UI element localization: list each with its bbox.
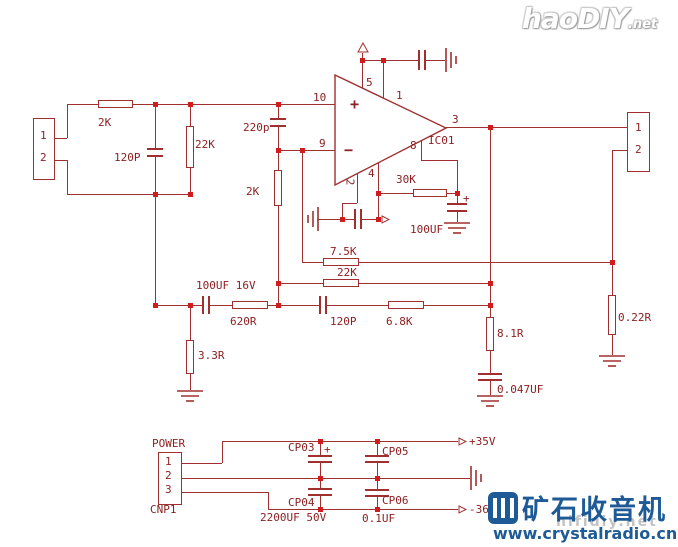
wire	[155, 194, 156, 305]
junction-dot	[318, 476, 323, 481]
capacitor-cp06	[365, 489, 389, 491]
power-pin1-label: 1	[165, 456, 172, 468]
junction-dot	[488, 303, 493, 308]
resistor-30k-label: 30K	[396, 174, 416, 186]
resistor-2k-input	[98, 100, 133, 108]
bigcap-value-label: 2200UF 50V	[260, 512, 326, 524]
resistor-6k8-label: 6.8K	[386, 316, 413, 328]
vplus-arrow-icon	[357, 42, 369, 53]
wire	[182, 478, 470, 479]
wire	[302, 150, 303, 262]
wire	[302, 262, 323, 263]
wire	[67, 104, 98, 105]
input-pin1-label: 1	[40, 130, 47, 142]
wire	[67, 194, 190, 195]
wire	[67, 104, 68, 138]
net-arrow-icon	[381, 215, 390, 224]
wire	[222, 441, 458, 442]
input-connector	[33, 118, 55, 180]
wire	[362, 60, 419, 61]
capacitor-supply-bypass	[418, 50, 420, 70]
ground-icon	[445, 48, 458, 73]
wire	[268, 509, 458, 510]
capacitor-cp06-label: CP06	[382, 495, 409, 507]
opamp-pin5-label: 5	[366, 77, 373, 89]
resistor-2k-feedback	[274, 170, 282, 206]
ground-icon	[444, 222, 471, 235]
wire	[612, 150, 613, 262]
opamp-pin2-label: 2	[343, 179, 355, 186]
crystalradio-url: www.crystalradio.cn	[493, 524, 677, 543]
wire-pin5	[362, 60, 363, 88]
smallcap-value-label: 0.1UF	[362, 513, 395, 525]
wire	[357, 174, 358, 203]
wire	[490, 283, 491, 305]
power-title: POWER	[152, 438, 185, 450]
wire	[190, 305, 191, 340]
logo-bar	[501, 498, 505, 518]
opamp-minus-sign: −	[344, 143, 353, 158]
wire	[421, 160, 457, 161]
wire	[268, 492, 269, 509]
opamp-plus-sign: +	[350, 97, 359, 112]
resistor-7k5-label: 7.5K	[330, 246, 357, 258]
junction-dot	[360, 58, 365, 63]
wire	[457, 160, 458, 193]
resistor-620r	[232, 301, 268, 309]
capacitor-0047uf	[478, 373, 502, 375]
junction-dot	[153, 102, 158, 107]
schematic-canvas: 1 2 2K 120P 22K 220p 2K + − 10 9 IC01	[0, 0, 678, 547]
junction-dot	[488, 281, 493, 286]
resistor-30k	[413, 189, 447, 197]
wire	[490, 127, 491, 283]
opamp-pin10-label: 10	[313, 92, 326, 104]
wire-pin1	[383, 60, 384, 98]
wire-output	[446, 127, 627, 128]
wire	[421, 141, 422, 160]
junction-dot	[276, 102, 281, 107]
wire	[278, 150, 335, 151]
net-arrow-icon	[458, 505, 467, 514]
wire	[190, 168, 191, 194]
wire	[182, 492, 268, 493]
opamp-pin9-label: 9	[319, 138, 326, 150]
junction-dot	[188, 102, 193, 107]
capacitor-cp04-label: CP04	[288, 497, 315, 509]
wire	[359, 283, 490, 284]
wire	[612, 262, 613, 295]
wire-pin4	[378, 162, 379, 193]
input-pin2-label: 2	[40, 152, 47, 164]
ground-icon	[470, 466, 483, 491]
wire	[55, 138, 67, 139]
resistor-0r22-label: 0.22R	[618, 312, 651, 324]
output-pin1-label: 1	[635, 122, 642, 134]
power-connector-refdes: CNP1	[150, 504, 177, 516]
wire	[278, 283, 323, 284]
wire	[490, 351, 491, 373]
resistor-3r3-label: 3.3R	[198, 350, 225, 362]
resistor-3r3	[186, 340, 194, 374]
wire	[222, 441, 223, 463]
junction-dot	[610, 260, 615, 265]
capacitor-cp03-label: CP03	[288, 442, 315, 454]
crystalradio-logo-icon	[488, 492, 518, 524]
capacitor-cp05-label: CP05	[382, 446, 409, 458]
opamp-pin8-label: 8	[410, 140, 417, 152]
crystalradio-title: 矿石收音机	[522, 488, 667, 527]
wire	[190, 374, 191, 390]
power-pin3-label: 3	[165, 484, 172, 496]
opamp-triangle	[334, 74, 448, 188]
wire	[182, 463, 222, 464]
junction-dot	[375, 507, 380, 512]
wire	[342, 203, 357, 204]
wire	[155, 104, 156, 148]
resistor-2k-feedback-label: 2K	[246, 186, 259, 198]
resistor-22k-feedback	[323, 279, 359, 287]
junction-dot	[153, 303, 158, 308]
capacitor-cp03-plus: +	[324, 444, 331, 456]
wire	[155, 157, 156, 194]
wire	[317, 219, 355, 220]
resistor-22k-input	[186, 126, 194, 168]
wire	[612, 150, 627, 151]
ground-icon	[477, 395, 504, 408]
resistor-620r-label: 620R	[230, 316, 257, 328]
resistor-22k-feedback-label: 22K	[337, 267, 357, 279]
wire	[378, 193, 413, 194]
wire	[490, 381, 491, 395]
wire	[378, 193, 379, 219]
wire	[457, 212, 458, 222]
wire	[327, 305, 388, 306]
wire	[426, 60, 445, 61]
opamp-pin1-label: 1	[396, 90, 403, 102]
net-arrow-icon	[458, 437, 467, 446]
wire	[359, 262, 612, 263]
wire	[278, 127, 279, 150]
wire	[424, 305, 490, 306]
ground-icon	[599, 355, 626, 368]
resistor-8r1	[486, 317, 494, 351]
logo-bar	[510, 498, 514, 518]
junction-dot	[188, 303, 193, 308]
junction-dot	[300, 148, 305, 153]
junction-dot	[381, 58, 386, 63]
resistor-8r1-label: 8.1R	[497, 328, 524, 340]
opamp-pin3-label: 3	[452, 114, 459, 126]
capacitor-120p-feedback	[319, 296, 321, 314]
resistor-0r22	[608, 295, 616, 335]
wire	[278, 206, 279, 305]
junction-dot	[455, 191, 460, 196]
wire	[210, 305, 232, 306]
wire	[278, 150, 279, 170]
junction-dot	[318, 507, 323, 512]
junction-dot	[375, 439, 380, 444]
wire	[133, 104, 335, 105]
resistor-22k-input-label: 22K	[195, 139, 215, 151]
wire	[190, 104, 191, 126]
wire	[155, 305, 202, 306]
opamp-pin4-label: 4	[368, 168, 375, 180]
haodiy-watermark: haoDIY.net	[522, 2, 678, 35]
wire	[612, 335, 613, 355]
vpos-label: +35V	[469, 436, 496, 448]
wire	[67, 160, 68, 194]
haodiy-watermark-net: .net	[628, 17, 657, 32]
junction-dot	[153, 192, 158, 197]
junction-dot	[188, 192, 193, 197]
resistor-6k8	[388, 301, 424, 309]
capacitor-120p-input-label: 120P	[114, 152, 141, 164]
capacitor-100uf-plus: +	[463, 193, 470, 205]
output-pin2-label: 2	[635, 144, 642, 156]
junction-dot	[276, 281, 281, 286]
capacitor-100uf-label: 100UF	[410, 224, 443, 236]
opamp-ic-label: IC01	[428, 135, 455, 147]
wire	[278, 305, 319, 306]
junction-dot	[376, 217, 381, 222]
resistor-2k-input-label: 2K	[98, 117, 111, 129]
capacitor-100uf-16v-label: 100UF 16V	[196, 280, 256, 292]
junction-dot	[276, 148, 281, 153]
resistor-7k5	[323, 258, 359, 266]
capacitor-cp04	[308, 488, 332, 490]
junction-dot	[376, 191, 381, 196]
junction-dot	[340, 217, 345, 222]
junction-dot	[318, 439, 323, 444]
capacitor-220p-label: 220p	[243, 122, 270, 134]
ground-icon	[177, 390, 204, 403]
capacitor-pin2	[354, 209, 356, 229]
power-pin2-label: 2	[165, 470, 172, 482]
capacitor-220p	[270, 118, 286, 120]
junction-dot	[488, 125, 493, 130]
wire	[55, 160, 67, 161]
junction-dot	[375, 476, 380, 481]
haodiy-watermark-text: haoDIY	[522, 2, 628, 35]
capacitor-100uf-16v	[202, 296, 204, 314]
capacitor-120p-input	[147, 148, 163, 150]
junction-dot	[276, 303, 281, 308]
capacitor-120p-feedback-label: 120P	[330, 316, 357, 328]
logo-bar	[493, 498, 497, 518]
